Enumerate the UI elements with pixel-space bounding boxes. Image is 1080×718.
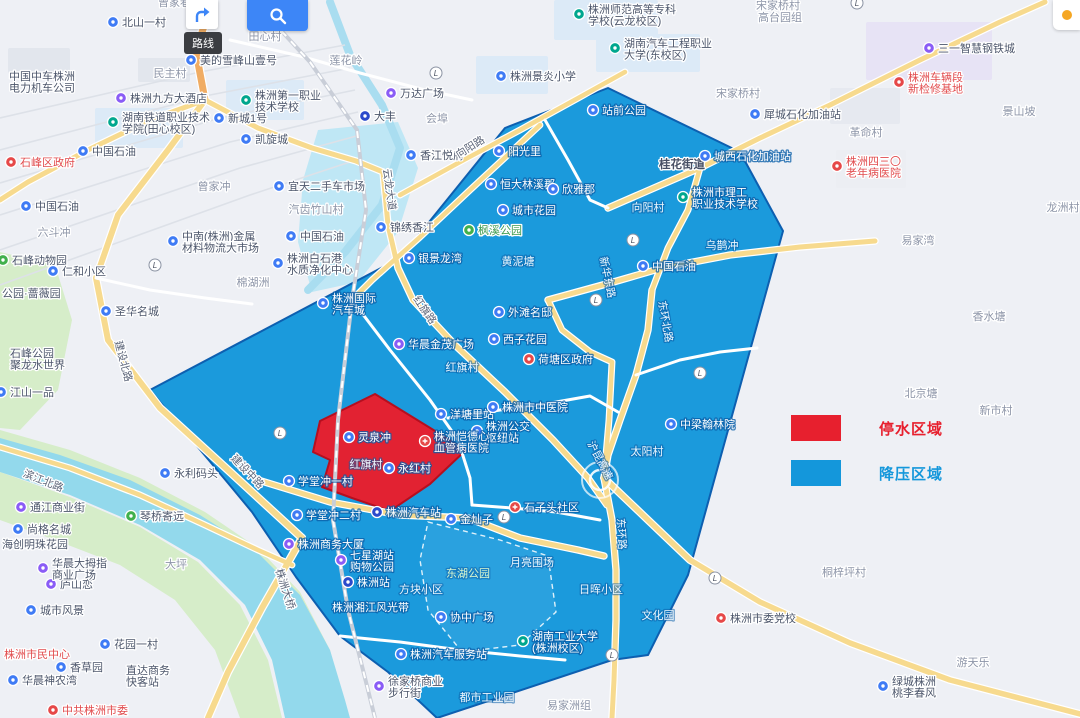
map-label: 月亮围场 (510, 555, 554, 569)
pin-glyph (491, 405, 494, 408)
map-label: 田心村 (249, 29, 282, 43)
road-shield-letter: L (855, 0, 859, 8)
map-label: 建设北路 (112, 339, 136, 383)
pin-glyph (81, 149, 84, 152)
map-label: 桐梓坪村 (822, 565, 866, 579)
map-label: 株洲恺德心血管病医院 (434, 429, 489, 455)
pin-glyph (129, 514, 132, 517)
map-label: 琴桥寄远 (140, 509, 184, 523)
pin-glyph (287, 479, 290, 482)
map-label: 株洲九方大酒店 (130, 91, 207, 105)
road-shield-letter: L (153, 261, 157, 270)
route-arrow-icon (192, 6, 212, 24)
map-label: 红旗村 (350, 457, 383, 471)
road-shield-letter: L (610, 651, 614, 660)
pin-glyph (104, 309, 107, 312)
map-label: 株洲市委党校 (730, 611, 796, 625)
pin-glyph (339, 558, 342, 561)
pin-glyph (51, 708, 54, 711)
pin-glyph (11, 678, 14, 681)
pin-glyph (51, 269, 54, 272)
map-label: 太阳村 (631, 444, 664, 458)
pin-glyph (377, 684, 380, 687)
map-label: 黄泥塘 (502, 254, 535, 268)
map-label: 阳光里 (508, 144, 541, 158)
pin-glyph (753, 112, 756, 115)
pin-glyph (467, 228, 470, 231)
pin-glyph (927, 46, 930, 49)
map-label: 中南(株洲)金属材料物流大市场 (182, 229, 259, 255)
legend-label-outage: 停水区域 (879, 418, 943, 439)
map-label: 石峰动物园 (12, 253, 67, 267)
pin-glyph (59, 665, 62, 668)
pin-glyph (363, 114, 366, 117)
map-label: 尚格名城 (27, 522, 71, 536)
pin-glyph (409, 153, 412, 156)
map-label: 株洲第一职业技术学校 (255, 88, 321, 114)
legend-item-outage: 停水区域 (791, 415, 943, 441)
map-label: 游天乐 (957, 656, 990, 669)
map-label: 株洲景炎小学 (510, 69, 576, 83)
map-label: 文化园 (642, 608, 675, 622)
map-label: 易家洲组 (547, 698, 591, 712)
map-label: 中梁翰林院 (680, 417, 735, 431)
pin-glyph (681, 195, 684, 198)
pin-glyph (719, 616, 722, 619)
pin-glyph (287, 542, 290, 545)
pin-glyph (244, 98, 247, 101)
pin-glyph (613, 46, 616, 49)
map-label: 圣华名城 (115, 304, 159, 318)
pin-glyph (397, 342, 400, 345)
pin-glyph (111, 20, 114, 23)
pin-glyph (591, 108, 594, 111)
map-label: 石子头社区 (524, 500, 579, 514)
pin-glyph (171, 239, 174, 242)
map-label: 景山坡 (1003, 105, 1036, 118)
pin-glyph (9, 160, 12, 163)
pin-glyph (347, 435, 350, 438)
map-label: 犀城石化加油站 (764, 107, 841, 121)
map-label: 株洲市中医院 (502, 400, 568, 414)
pin-glyph (669, 422, 672, 425)
map-label: 中国中车株洲电力机车公司 (9, 69, 75, 95)
map-label: 中共株洲市委 (62, 703, 128, 717)
map-label: 美的雪峰山壹号 (200, 53, 277, 67)
map-label: 北山一村 (122, 15, 166, 29)
map-label: 方块小区 (399, 582, 443, 596)
map-label: 株洲师范高等专科学校(云龙校区) (588, 2, 676, 28)
map-label: 城市风景 (40, 603, 84, 617)
map-label: 锦绣香江 (390, 220, 434, 234)
map-label: 海创明珠花园 (2, 537, 68, 551)
map-label: 恒大林溪郡 (500, 177, 555, 191)
map-label: 绿城株洲桃李春风 (892, 674, 936, 700)
map-label: 仁和小区 (62, 265, 106, 278)
pin-glyph (881, 684, 884, 687)
map-label: 花园一村 (114, 637, 158, 651)
pin-glyph (321, 301, 324, 304)
pin-glyph (103, 642, 106, 645)
road (608, 2, 1045, 208)
pin-glyph (379, 225, 382, 228)
map-label: 汽齿竹山村 (289, 202, 344, 216)
map-label: 东湖公园 (446, 567, 490, 580)
map-label: 易家湾 (902, 233, 935, 247)
pin-glyph (387, 466, 390, 469)
map-label: 城西石化加油站 (714, 149, 791, 163)
map-label: 公园·蔷薇园 (2, 287, 61, 300)
map-label: 学堂冲一村 (298, 474, 353, 488)
map-label: 香水塘 (973, 309, 1006, 323)
search-icon (269, 7, 287, 25)
pin-glyph (16, 527, 19, 530)
map-label: 三一智慧钢铁城 (938, 41, 1015, 55)
map-label: 直达商务快客站 (126, 663, 170, 689)
collapsed-panel[interactable] (1053, 0, 1080, 30)
map-label: 枫溪公园 (478, 223, 522, 237)
map-label: 华晨大拇指商业广场 (52, 556, 107, 582)
pin-glyph (521, 639, 524, 642)
legend-item-reduced-pressure: 降压区域 (791, 460, 943, 486)
map-label: 华晨金茂广场 (408, 337, 474, 351)
map-label: 日晖小区 (579, 583, 623, 596)
road-shield-letter: L (713, 574, 717, 583)
map-label: 荷塘区政府 (538, 352, 593, 366)
pin-glyph (439, 412, 442, 415)
pin-glyph (835, 164, 838, 167)
pin-glyph (501, 208, 504, 211)
pin-glyph (703, 154, 706, 157)
map-label: 曾家冲 (198, 179, 231, 193)
legend-swatch-outage (791, 415, 841, 441)
panel-icon (1062, 10, 1072, 20)
map-label: 永红村 (398, 461, 431, 475)
pin-glyph (499, 74, 502, 77)
map-label: 株洲市民中心 (4, 647, 70, 661)
map-label: 高台园组 (758, 10, 802, 24)
route-tooltip: 路线 (184, 32, 222, 54)
map-label: 棉湖洲 (237, 275, 270, 289)
pin-glyph (346, 580, 349, 583)
map-label: 中国石油 (300, 229, 344, 243)
map-label: 学堂冲二村 (306, 508, 361, 522)
pin-glyph (399, 652, 402, 655)
pin-glyph (217, 116, 220, 119)
pin-glyph (527, 357, 530, 360)
map-label: 湖南铁道职业技术学院(田心校区) (122, 110, 210, 136)
map-label: 万达广场 (400, 86, 444, 100)
map-label: 通江商业街 (30, 500, 85, 514)
map-label: 莲花岭 (330, 53, 363, 67)
map-label: 新市村 (980, 403, 1013, 417)
map-label: 东环路 (614, 518, 629, 551)
map-label: 红旗村 (446, 360, 479, 374)
pin-glyph (439, 615, 442, 618)
pin-glyph (551, 187, 554, 190)
pin-glyph (277, 184, 280, 187)
map-label: 欣雅郡 (562, 182, 595, 196)
pin-glyph (189, 58, 192, 61)
legend-label-reduced-pressure: 降压区域 (879, 463, 943, 484)
map-label: 协中广场 (450, 610, 494, 624)
map-label: 城市花园 (512, 203, 556, 217)
map-label: 宋家桥村 (716, 86, 760, 100)
map-label: 乌鹊冲 (706, 238, 739, 252)
map-label: 银景龙湾 (418, 251, 462, 265)
pin-glyph (295, 513, 298, 516)
map-label: 江山一品 (10, 386, 54, 399)
pin-glyph (29, 608, 32, 611)
map-label: 民主村 (154, 66, 187, 80)
map-label: 大丰 (374, 109, 396, 123)
map-label: 中国石油 (652, 259, 696, 273)
pin-glyph (163, 471, 166, 474)
pin-glyph (19, 505, 22, 508)
pin-glyph (449, 517, 452, 520)
pin-glyph (41, 566, 44, 569)
pin-glyph (497, 310, 500, 313)
pin-glyph (276, 261, 279, 264)
pin-glyph (49, 582, 52, 585)
green-area (0, 252, 72, 430)
map-label: 龙洲村 (1047, 200, 1080, 214)
map-label: 株洲商务大厦 (298, 537, 364, 551)
pin-glyph (111, 120, 114, 123)
road-shield-letter: L (502, 513, 506, 522)
map-page: LLLLLLLLLL曾家巷子北山一村中国中车株洲电力机车公司民主村美的雪峰山壹号… (0, 0, 1080, 718)
pin-glyph (489, 182, 492, 185)
road-shield-letter: L (278, 429, 282, 438)
pin-glyph (1, 258, 4, 261)
map-label: 中国石油 (92, 144, 136, 158)
pin-glyph (119, 96, 122, 99)
map-label: 都市工业园 (460, 690, 515, 704)
map-label: 株洲湘江风光带 (332, 600, 409, 614)
pin-glyph (289, 234, 292, 237)
pin-glyph (24, 204, 27, 207)
map-label: 华晨神农湾 (22, 673, 77, 687)
map-label: 株洲汽车服务站 (410, 647, 487, 661)
map-label: 宋家桥村 (756, 0, 800, 12)
map-label: 宜天二手车市场 (288, 179, 365, 193)
pin-glyph (244, 137, 247, 140)
pin-glyph (492, 337, 495, 340)
road-shield-letter: L (434, 69, 438, 78)
map-label: 株洲四三〇老年病医院 (846, 154, 901, 180)
map-label: 金灿子 (460, 512, 493, 526)
map-label: 中国石油 (35, 199, 79, 213)
road-shield-letter: L (698, 369, 702, 378)
road-shield-letter: L (594, 296, 598, 305)
map-label: 向阳村 (632, 200, 665, 214)
map-canvas[interactable]: LLLLLLLLLL曾家巷子北山一村中国中车株洲电力机车公司民主村美的雪峰山壹号… (0, 0, 1080, 718)
map-label: 六斗冲 (38, 225, 71, 239)
map-label: 北京塘 (905, 386, 938, 400)
map-label: 灵泉冲 (358, 430, 391, 444)
map-label: 站前公园 (602, 103, 646, 117)
map-label: 会埠 (426, 111, 448, 125)
pin-glyph (389, 91, 392, 94)
map-label: 永利码头 (174, 466, 218, 480)
road (96, 278, 252, 304)
pin-glyph (497, 149, 500, 152)
legend-swatch-reduced-pressure (791, 460, 841, 486)
map-label: 株洲汽车站 (386, 505, 441, 519)
map-label: 大坪 (165, 557, 187, 571)
map-label: 凯旋城 (255, 132, 288, 146)
map-label: 株洲车辆段新检修基地 (908, 70, 963, 96)
pin-glyph (407, 256, 410, 259)
road-shield-letter: L (631, 236, 635, 245)
search-button[interactable] (247, 0, 308, 31)
map-label: 七星湖站购物公园 (350, 548, 394, 574)
map-label: 桂花街道 (658, 157, 705, 171)
legend: 停水区域 降压区域 (791, 415, 943, 505)
directions-button[interactable] (186, 0, 218, 29)
map-label: 株洲站 (357, 575, 390, 589)
pin-glyph (375, 510, 378, 513)
pin-glyph (897, 80, 900, 83)
map-label: 外滩名邸 (508, 305, 552, 319)
map-label: 革命村 (850, 125, 883, 139)
pin-glyph (641, 264, 644, 267)
pin-glyph (577, 12, 580, 15)
map-label: 西子花园 (503, 333, 547, 346)
map-label: 石峰区政府 (20, 155, 75, 169)
map-label: 香草园 (70, 661, 103, 674)
